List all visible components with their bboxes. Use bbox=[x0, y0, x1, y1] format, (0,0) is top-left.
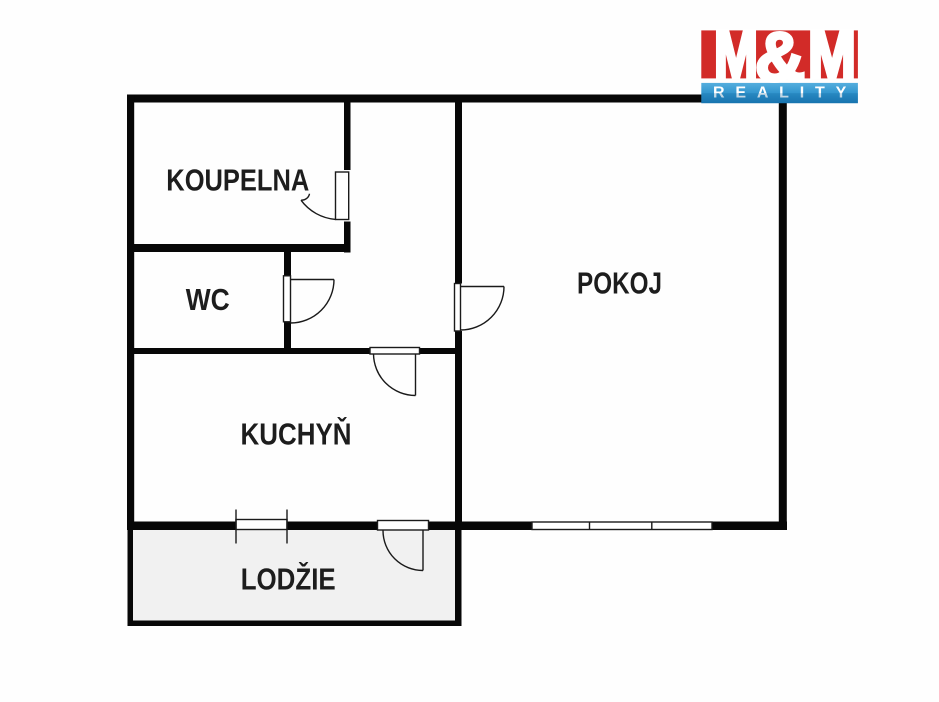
svg-text:M: M bbox=[808, 17, 856, 93]
svg-text:KUCHYŇ: KUCHYŇ bbox=[241, 415, 352, 451]
svg-text:WC: WC bbox=[186, 282, 230, 317]
svg-text:M: M bbox=[714, 17, 758, 93]
svg-text:POKOJ: POKOJ bbox=[577, 265, 662, 300]
svg-text:KOUPELNA: KOUPELNA bbox=[166, 162, 309, 197]
svg-text:LODŽIE: LODŽIE bbox=[241, 561, 336, 597]
